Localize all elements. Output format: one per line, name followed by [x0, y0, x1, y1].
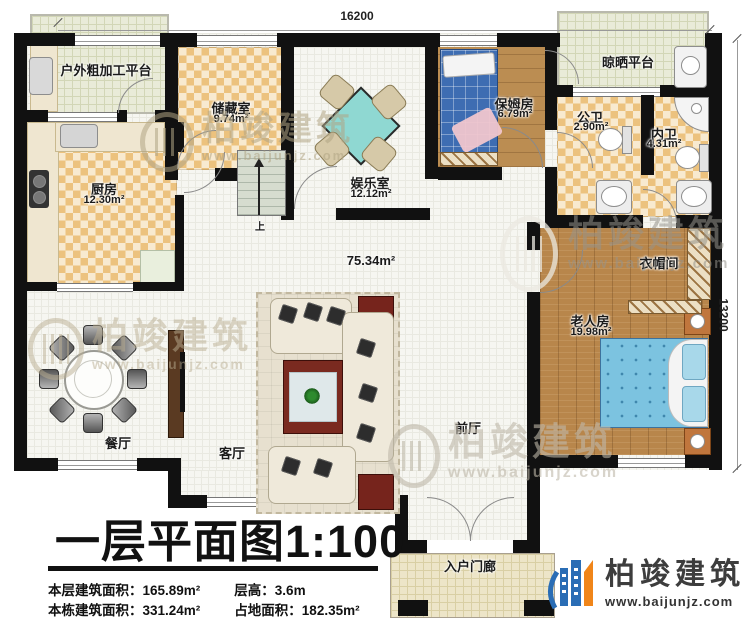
brand-logo: 柏竣建筑 www.baijunjz.com	[545, 552, 745, 617]
brand-name: 柏竣建筑	[605, 560, 745, 590]
wall	[277, 33, 440, 47]
room-area-public-bath: 2.90m²	[574, 121, 609, 133]
cloak-wardrobe	[687, 228, 711, 300]
dining-chair	[39, 369, 59, 389]
room-label-cloakroom: 衣帽间	[639, 253, 678, 272]
dimension-width: 16200	[340, 9, 373, 23]
dining-chair	[83, 413, 103, 433]
window	[75, 35, 160, 46]
sofa-bottom	[268, 446, 356, 504]
room-label-front-hall: 前厅	[455, 418, 481, 437]
vanity-basin	[681, 186, 707, 207]
stat-label: 本层建筑面积：	[48, 583, 143, 598]
dimension-line-right	[737, 40, 738, 470]
wall	[27, 282, 57, 291]
wall	[527, 222, 540, 250]
stat-label: 本栋建筑面积：	[48, 603, 143, 618]
room-label-drying-platform: 晾晒平台	[602, 52, 654, 71]
tv	[180, 352, 185, 412]
toilet	[699, 144, 709, 172]
burner	[33, 191, 46, 204]
fridge	[140, 250, 175, 284]
stat-value: 331.24m²	[143, 603, 201, 618]
wall	[27, 33, 75, 46]
stats-row-1: 本层建筑面积：165.89m² 层高：3.6m	[48, 579, 306, 599]
shower-drain	[691, 103, 702, 114]
brand-logo-icon	[545, 552, 597, 617]
wall	[685, 455, 722, 468]
dimension-height: 13200	[717, 298, 731, 331]
stat-value: 165.89m²	[143, 583, 201, 598]
wall	[527, 468, 540, 553]
wall	[336, 208, 430, 220]
dining-chair	[83, 325, 103, 345]
wall	[155, 110, 165, 122]
wall	[545, 215, 643, 228]
window	[197, 35, 277, 46]
room-label-outdoor-platform: 户外粗加工平台	[60, 60, 151, 79]
wall	[175, 195, 184, 291]
stat-label: 占地面积：	[234, 603, 302, 618]
stat-value: 3.6m	[275, 583, 306, 598]
room-label-porch: 入户门廊	[444, 556, 496, 575]
room-area-entertainment: 12.12m²	[351, 188, 392, 200]
nightstand-lamp	[690, 434, 705, 449]
wall	[133, 282, 175, 291]
hall-area-label: 75.34m²	[347, 253, 395, 268]
toilet	[622, 126, 632, 154]
window	[58, 460, 137, 470]
wall	[545, 95, 557, 130]
wall	[14, 458, 58, 471]
elder-pillow	[682, 386, 706, 422]
stairs-up-label: 上	[255, 218, 265, 233]
stairs-arrowhead	[254, 158, 264, 167]
wall	[398, 600, 428, 616]
wall	[425, 33, 438, 179]
kitchen-sink	[60, 124, 98, 148]
stairs-arrow	[258, 165, 260, 215]
wall	[438, 167, 502, 180]
title-underline	[48, 566, 378, 571]
wall	[527, 292, 540, 468]
burner	[33, 175, 46, 188]
plan-title-text: 一层平面图	[55, 516, 285, 567]
brand-url: www.baijunjz.com	[605, 594, 745, 609]
stats-row-2: 本栋建筑面积：331.24m² 占地面积：182.35m²	[48, 599, 360, 619]
plant	[303, 387, 321, 405]
vanity-basin	[601, 186, 627, 207]
window	[57, 283, 133, 292]
elder-pillow	[682, 344, 706, 380]
washing-machine-door	[681, 56, 700, 75]
dining-chair	[127, 369, 147, 389]
nightstand-lamp	[690, 314, 705, 329]
wall	[27, 110, 48, 122]
room-area-nanny: 6.79m²	[498, 108, 533, 120]
plan-title: 一层平面图1:100	[55, 505, 405, 570]
room-area-elder: 19.98m²	[571, 326, 612, 338]
floor-plan-canvas: 上	[0, 0, 750, 627]
stat-value: 182.35m²	[302, 603, 360, 618]
wall	[527, 455, 618, 468]
wall	[676, 215, 709, 228]
nanny-pillow	[442, 52, 495, 78]
room-area-inner-bath: 4.31m²	[647, 138, 682, 150]
plan-title-scale: 1:100	[285, 516, 405, 567]
room-label-dining: 餐厅	[105, 433, 131, 452]
wall	[14, 33, 27, 471]
dimension-line-top	[58, 30, 712, 31]
room-area-kitchen: 12.30m²	[84, 194, 125, 206]
elder-wardrobe	[628, 300, 702, 314]
nanny-shelf	[440, 152, 498, 166]
window	[618, 458, 685, 468]
outdoor-sink	[29, 57, 53, 95]
wall	[168, 470, 181, 508]
room-label-living: 客厅	[219, 443, 245, 462]
wall	[165, 168, 178, 180]
window	[440, 35, 497, 46]
room-area-storage: 9.74m²	[214, 113, 249, 125]
dining-table-inner	[74, 360, 112, 398]
window	[48, 112, 117, 122]
stat-label: 层高：	[234, 583, 275, 598]
